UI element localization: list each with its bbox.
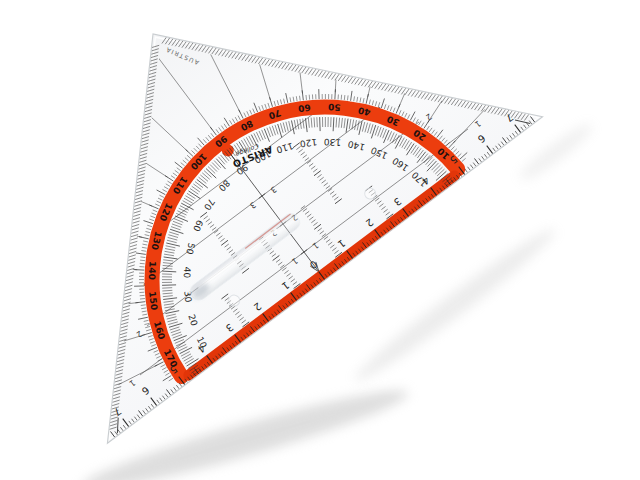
band-degree-label: 60 xyxy=(297,102,311,113)
geo-triangle-photo: 1122334411223310170201603015040140501306… xyxy=(0,0,640,480)
photo-canvas: 1122334411223310170201603015040140501306… xyxy=(0,0,640,480)
inner-degree-label: 40 xyxy=(182,266,193,278)
band-degree-label: 50 xyxy=(328,102,341,113)
inner-degree-label: 130 xyxy=(323,137,341,148)
inner-degree-label: 120 xyxy=(299,137,318,149)
band-degree-label: 140 xyxy=(147,261,158,280)
